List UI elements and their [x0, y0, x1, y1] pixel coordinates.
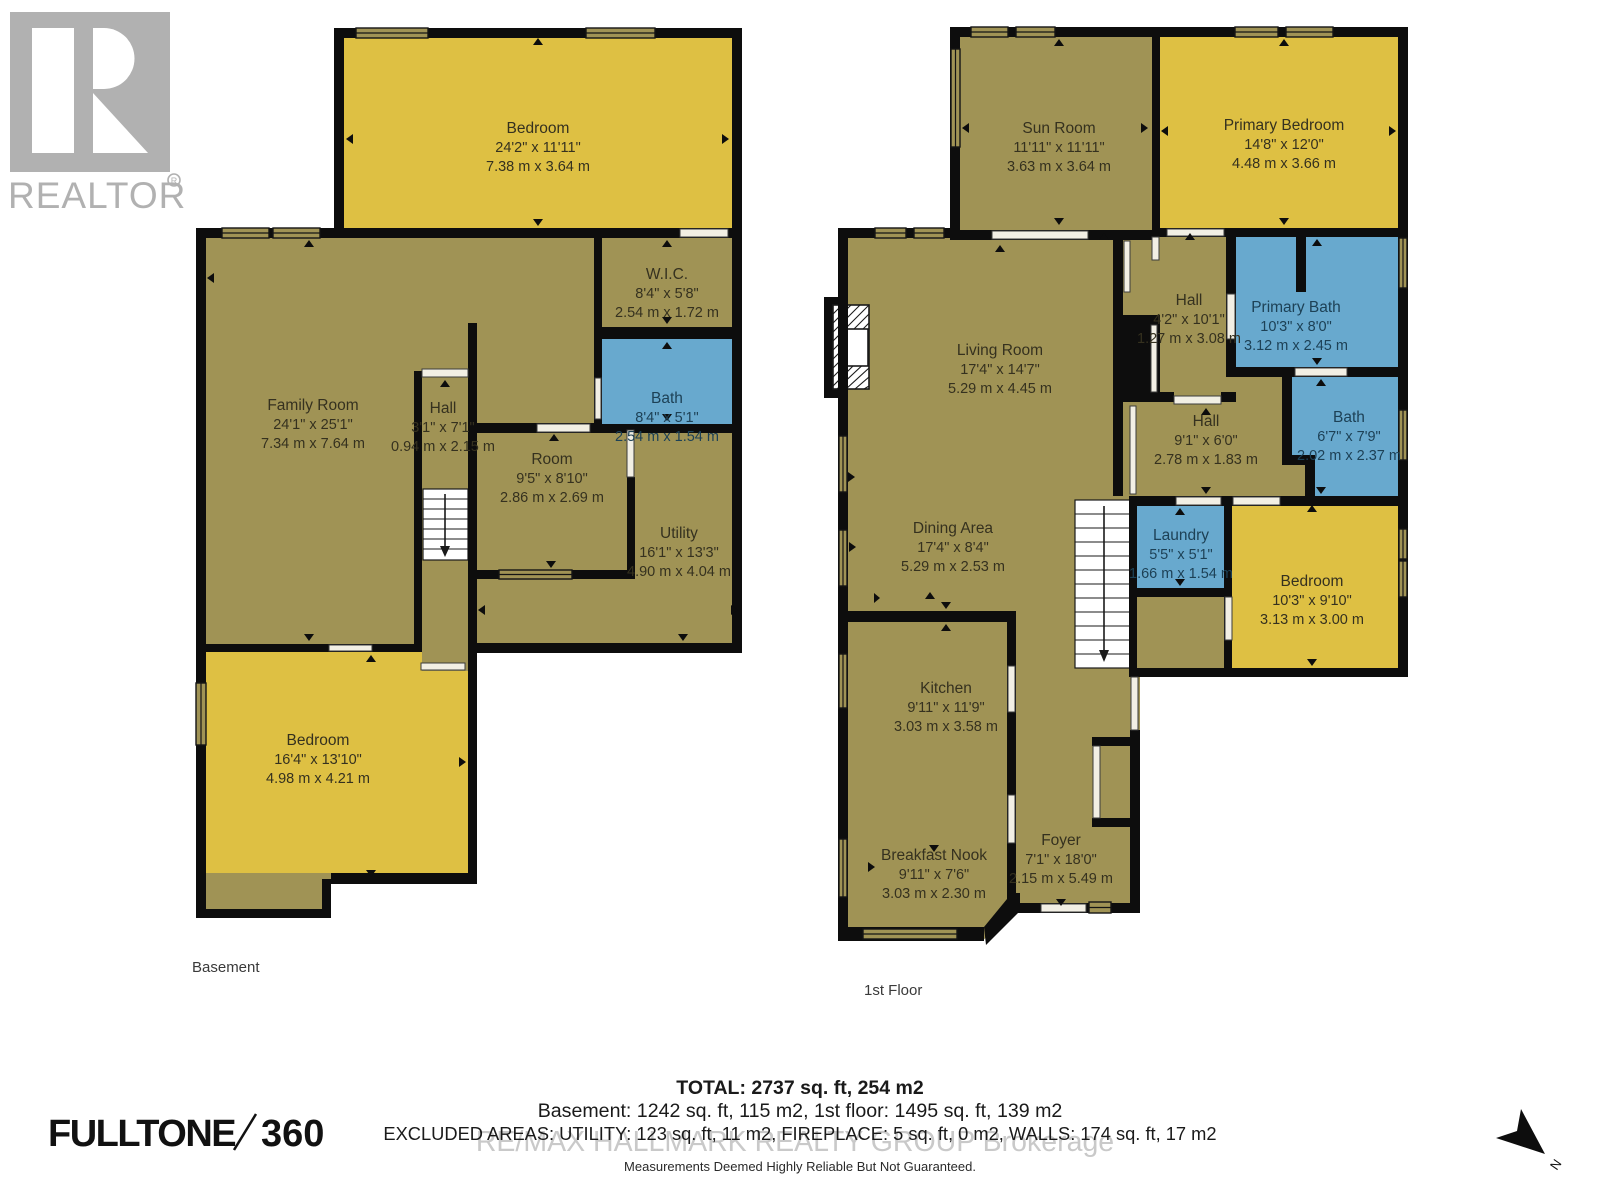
svg-text:3.12 m x 2.45 m: 3.12 m x 2.45 m [1244, 338, 1348, 354]
svg-text:3.13 m x 3.00 m: 3.13 m x 3.00 m [1260, 612, 1364, 628]
svg-text:Hall: Hall [1176, 292, 1203, 309]
svg-text:Bedroom: Bedroom [287, 732, 350, 749]
svg-text:Family Room: Family Room [267, 397, 358, 414]
svg-text:Dining Area: Dining Area [913, 520, 994, 537]
svg-text:4'2" x 10'1": 4'2" x 10'1" [1153, 312, 1224, 328]
svg-text:Basement: Basement [192, 959, 260, 976]
svg-text:2.54 m x 1.72 m: 2.54 m x 1.72 m [615, 305, 719, 321]
svg-text:2.86 m x 2.69 m: 2.86 m x 2.69 m [500, 490, 604, 506]
svg-text:0.94 m x 2.15 m: 0.94 m x 2.15 m [391, 439, 495, 455]
svg-text:2.02 m x 2.37 m: 2.02 m x 2.37 m [1297, 448, 1401, 464]
svg-text:Room: Room [531, 451, 572, 468]
svg-text:3.03 m x 2.30 m: 3.03 m x 2.30 m [882, 886, 986, 902]
svg-text:9'11" x 11'9": 9'11" x 11'9" [907, 700, 984, 716]
svg-text:W.I.C.: W.I.C. [646, 266, 688, 283]
svg-text:7'1" x 18'0": 7'1" x 18'0" [1025, 852, 1096, 868]
svg-text:Primary Bedroom: Primary Bedroom [1224, 117, 1345, 134]
svg-text:1.66 m x 1.54 m: 1.66 m x 1.54 m [1129, 566, 1233, 582]
svg-text:Bath: Bath [651, 390, 683, 407]
svg-text:Utility: Utility [660, 525, 698, 542]
svg-text:9'1" x 6'0": 9'1" x 6'0" [1174, 433, 1237, 449]
svg-text:5.29 m x 4.45 m: 5.29 m x 4.45 m [948, 381, 1052, 397]
svg-text:2.54 m x 1.54 m: 2.54 m x 1.54 m [615, 429, 719, 445]
svg-text:8'4" x 5'8": 8'4" x 5'8" [635, 286, 698, 302]
svg-text:Bedroom: Bedroom [507, 120, 570, 137]
svg-text:11'11" x 11'11": 11'11" x 11'11" [1013, 140, 1104, 156]
svg-text:3'1" x 7'1": 3'1" x 7'1" [411, 420, 474, 436]
svg-text:2.15 m x 5.49 m: 2.15 m x 5.49 m [1009, 871, 1113, 887]
svg-text:24'2" x 11'11": 24'2" x 11'11" [495, 140, 580, 156]
svg-text:7.38 m x 3.64 m: 7.38 m x 3.64 m [486, 159, 590, 175]
svg-text:TOTAL: 2737 sq. ft, 254 m2: TOTAL: 2737 sq. ft, 254 m2 [676, 1077, 924, 1099]
svg-text:Living Room: Living Room [957, 342, 1043, 359]
svg-text:360: 360 [261, 1113, 324, 1155]
svg-text:Basement: 1242 sq. ft, 115 m2,: Basement: 1242 sq. ft, 115 m2, 1st floor… [538, 1100, 1063, 1122]
svg-text:1st Floor: 1st Floor [864, 982, 922, 999]
svg-text:R: R [171, 176, 178, 186]
svg-text:REALTOR: REALTOR [8, 175, 186, 216]
svg-text:5.29 m x 2.53 m: 5.29 m x 2.53 m [901, 559, 1005, 575]
svg-text:Laundry: Laundry [1153, 527, 1209, 544]
svg-text:Kitchen: Kitchen [920, 680, 972, 697]
svg-text:17'4" x 8'4": 17'4" x 8'4" [917, 540, 988, 556]
svg-text:6'7" x 7'9": 6'7" x 7'9" [1317, 429, 1380, 445]
svg-text:4.98 m x 4.21 m: 4.98 m x 4.21 m [266, 771, 370, 787]
svg-text:Measurements Deemed Highly Rel: Measurements Deemed Highly Reliable But … [624, 1159, 976, 1174]
svg-text:10'3" x 8'0": 10'3" x 8'0" [1260, 319, 1331, 335]
svg-text:7.34 m x 7.64 m: 7.34 m x 7.64 m [261, 436, 365, 452]
svg-text:3.03 m x 3.58 m: 3.03 m x 3.58 m [894, 719, 998, 735]
svg-text:10'3" x 9'10": 10'3" x 9'10" [1272, 593, 1352, 609]
svg-text:Primary Bath: Primary Bath [1251, 299, 1341, 316]
svg-text:5'5" x 5'1": 5'5" x 5'1" [1149, 547, 1212, 563]
svg-text:16'4" x 13'10": 16'4" x 13'10" [274, 752, 362, 768]
svg-text:14'8" x 12'0": 14'8" x 12'0" [1244, 137, 1324, 153]
svg-text:Hall: Hall [430, 400, 457, 417]
svg-text:2.78 m x 1.83 m: 2.78 m x 1.83 m [1154, 452, 1258, 468]
svg-text:Hall: Hall [1193, 413, 1220, 430]
svg-text:4.90 m x 4.04 m: 4.90 m x 4.04 m [627, 564, 731, 580]
svg-text:9'11" x 7'6": 9'11" x 7'6" [899, 867, 969, 883]
svg-text:3.63 m x 3.64 m: 3.63 m x 3.64 m [1007, 159, 1111, 175]
svg-text:Sun Room: Sun Room [1022, 120, 1095, 137]
svg-text:4.48 m x 3.66 m: 4.48 m x 3.66 m [1232, 156, 1336, 172]
svg-text:Breakfast Nook: Breakfast Nook [881, 847, 987, 864]
svg-text:Bath: Bath [1333, 409, 1365, 426]
svg-text:8'4" x 5'1": 8'4" x 5'1" [635, 410, 698, 426]
svg-text:FULLTONE: FULLTONE [48, 1113, 235, 1155]
svg-text:Foyer: Foyer [1041, 832, 1081, 849]
svg-text:9'5" x 8'10": 9'5" x 8'10" [516, 471, 587, 487]
svg-text:16'1" x 13'3": 16'1" x 13'3" [639, 545, 719, 561]
svg-text:Bedroom: Bedroom [1281, 573, 1344, 590]
svg-text:24'1" x 25'1": 24'1" x 25'1" [273, 417, 353, 433]
svg-text:17'4" x 14'7": 17'4" x 14'7" [960, 362, 1040, 378]
svg-text:EXCLUDED AREAS: UTILITY: 123 s: EXCLUDED AREAS: UTILITY: 123 sq. ft, 11 … [383, 1123, 1216, 1144]
svg-text:1.27 m x 3.08 m: 1.27 m x 3.08 m [1137, 331, 1241, 347]
